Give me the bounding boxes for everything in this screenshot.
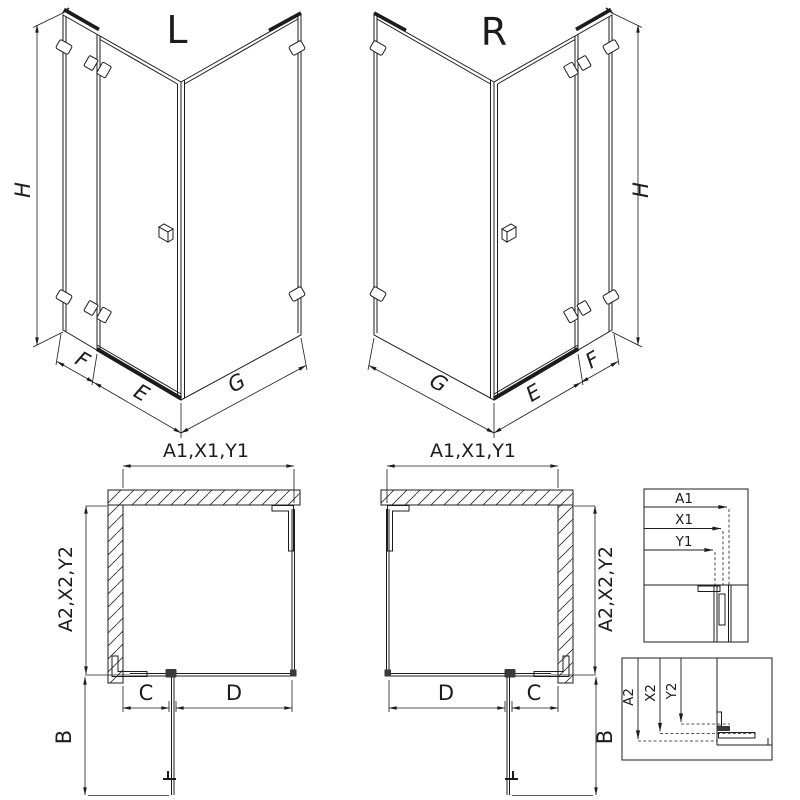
dim-label-f: F [71, 347, 94, 374]
dim-label-e: E [130, 379, 154, 407]
dim-label-f: F [581, 346, 604, 373]
detail-label-x1: X1 [675, 512, 693, 528]
diagram-canvas: L H F E G R H G E F A1,X1,Y1 A2,X2,Y2 C … [0, 0, 800, 800]
dim-label-a1x1y1: A1,X1,Y1 [430, 440, 516, 462]
dim-label-h: H [629, 182, 653, 198]
detail-box-depth: A2 X2 Y2 [621, 658, 772, 760]
shower-enclosure-technical-diagram: L H F E G R H G E F A1,X1,Y1 A2,X2,Y2 C … [0, 0, 800, 800]
dim-label-d: D [226, 681, 242, 705]
iso-left-linework [33, 8, 307, 438]
plan-view-right: A1,X1,Y1 A2,X2,Y2 D C B [381, 440, 617, 796]
variant-label-left: L [166, 8, 187, 52]
dim-label-d: D [438, 681, 454, 705]
detail-box-frame [644, 489, 748, 642]
isometric-view-right: R H G E F [368, 8, 653, 438]
plan-view-left: A1,X1,Y1 A2,X2,Y2 C D B [52, 440, 300, 796]
variant-label-right: R [481, 10, 507, 54]
plan-wall-top-hatched [108, 490, 300, 505]
dim-label-g: G [223, 368, 249, 397]
detail-label-a1: A1 [675, 491, 693, 507]
dim-label-b: B [52, 730, 76, 744]
dim-label-a1x1y1: A1,X1,Y1 [163, 440, 249, 462]
dim-label-e: E [522, 379, 546, 407]
iso-right-linework [368, 8, 642, 438]
detail-label-y1: Y1 [675, 534, 693, 550]
dim-label-c: C [527, 681, 542, 705]
dim-label-a2x2y2: A2,X2,Y2 [595, 546, 617, 632]
detail-label-y2: Y2 [664, 683, 680, 701]
dim-label-g: G [425, 368, 451, 397]
isometric-view-left: L H F E G [11, 8, 307, 438]
plan-wall-top-hatched [381, 490, 573, 505]
detail-box-width: A1 X1 Y1 [644, 489, 748, 642]
detail-label-a2: A2 [621, 688, 637, 706]
dim-label-b: B [593, 730, 617, 744]
detail-label-x2: X2 [643, 684, 659, 702]
dim-label-a2x2y2: A2,X2,Y2 [55, 546, 77, 632]
dim-label-c: C [139, 681, 154, 705]
dim-label-h: H [11, 182, 35, 198]
